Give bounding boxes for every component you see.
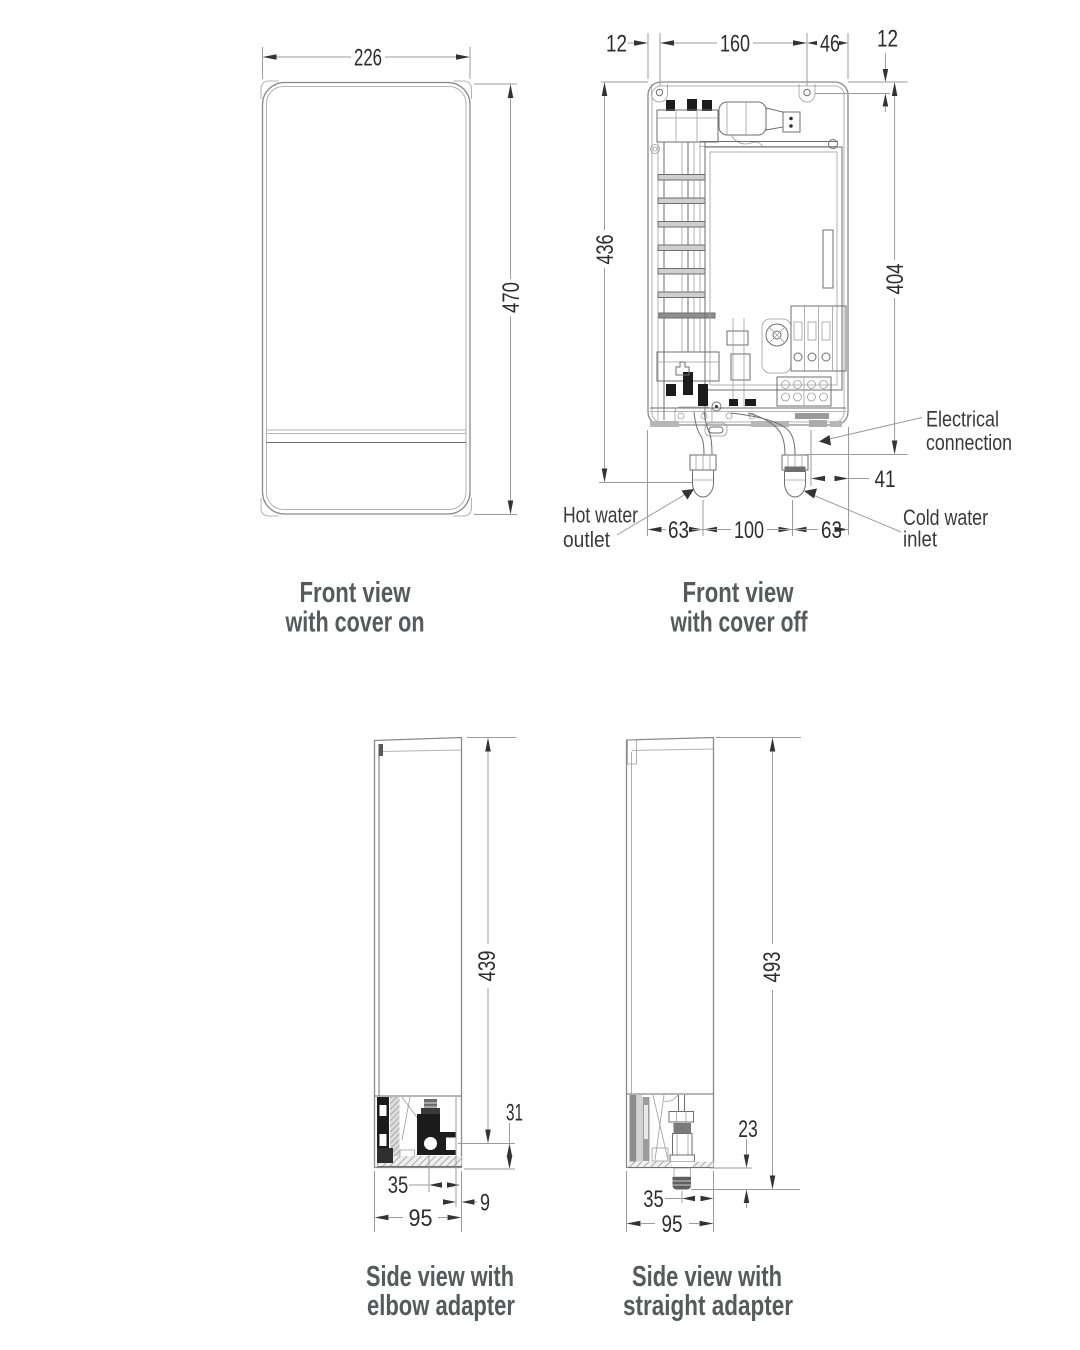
svg-text:160: 160 — [720, 31, 750, 58]
svg-text:31: 31 — [506, 1100, 523, 1127]
svg-text:404: 404 — [882, 264, 909, 295]
svg-text:straight adapter: straight adapter — [623, 1290, 793, 1322]
svg-text:95: 95 — [662, 1211, 683, 1238]
svg-text:Hot water: Hot water — [563, 503, 638, 528]
svg-text:439: 439 — [474, 951, 501, 982]
svg-text:35: 35 — [388, 1172, 409, 1199]
svg-text:connection: connection — [926, 430, 1012, 455]
svg-text:outlet: outlet — [563, 527, 610, 552]
svg-text:9: 9 — [480, 1190, 490, 1217]
svg-text:100: 100 — [734, 517, 764, 544]
svg-text:Front view: Front view — [683, 577, 794, 609]
svg-text:Side view with: Side view with — [366, 1261, 514, 1293]
svg-text:41: 41 — [875, 466, 896, 493]
svg-text:elbow adapter: elbow adapter — [367, 1290, 515, 1322]
svg-text:Front view: Front view — [300, 577, 411, 609]
svg-text:436: 436 — [592, 235, 619, 265]
svg-text:63: 63 — [821, 517, 842, 544]
svg-text:with cover on: with cover on — [285, 607, 425, 639]
svg-text:35: 35 — [643, 1186, 664, 1213]
svg-text:470: 470 — [498, 282, 525, 313]
svg-text:Electrical: Electrical — [926, 407, 999, 432]
svg-text:inlet: inlet — [903, 527, 937, 552]
svg-text:95: 95 — [409, 1205, 433, 1232]
svg-text:226: 226 — [354, 45, 382, 72]
svg-text:with cover off: with cover off — [670, 607, 808, 639]
svg-text:63: 63 — [668, 517, 689, 544]
svg-text:46: 46 — [820, 31, 840, 58]
svg-text:Side view with: Side view with — [632, 1261, 782, 1293]
svg-text:12: 12 — [606, 31, 627, 58]
svg-text:12: 12 — [877, 26, 898, 53]
svg-text:23: 23 — [738, 1116, 758, 1143]
svg-text:493: 493 — [759, 952, 786, 983]
